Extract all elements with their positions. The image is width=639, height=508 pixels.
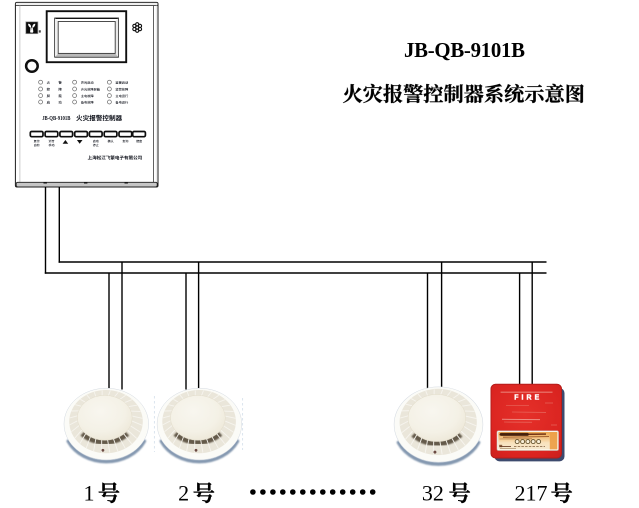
svg-text:JB-QB-9101B: JB-QB-9101B (42, 115, 70, 122)
svg-text:FIRE: FIRE (514, 395, 542, 402)
svg-text:JB-QB-9101B: JB-QB-9101B (404, 39, 525, 62)
svg-text:2: 2 (178, 480, 189, 505)
svg-text:217: 217 (515, 480, 548, 505)
svg-text:32: 32 (422, 480, 444, 505)
svg-text:1: 1 (84, 480, 95, 505)
